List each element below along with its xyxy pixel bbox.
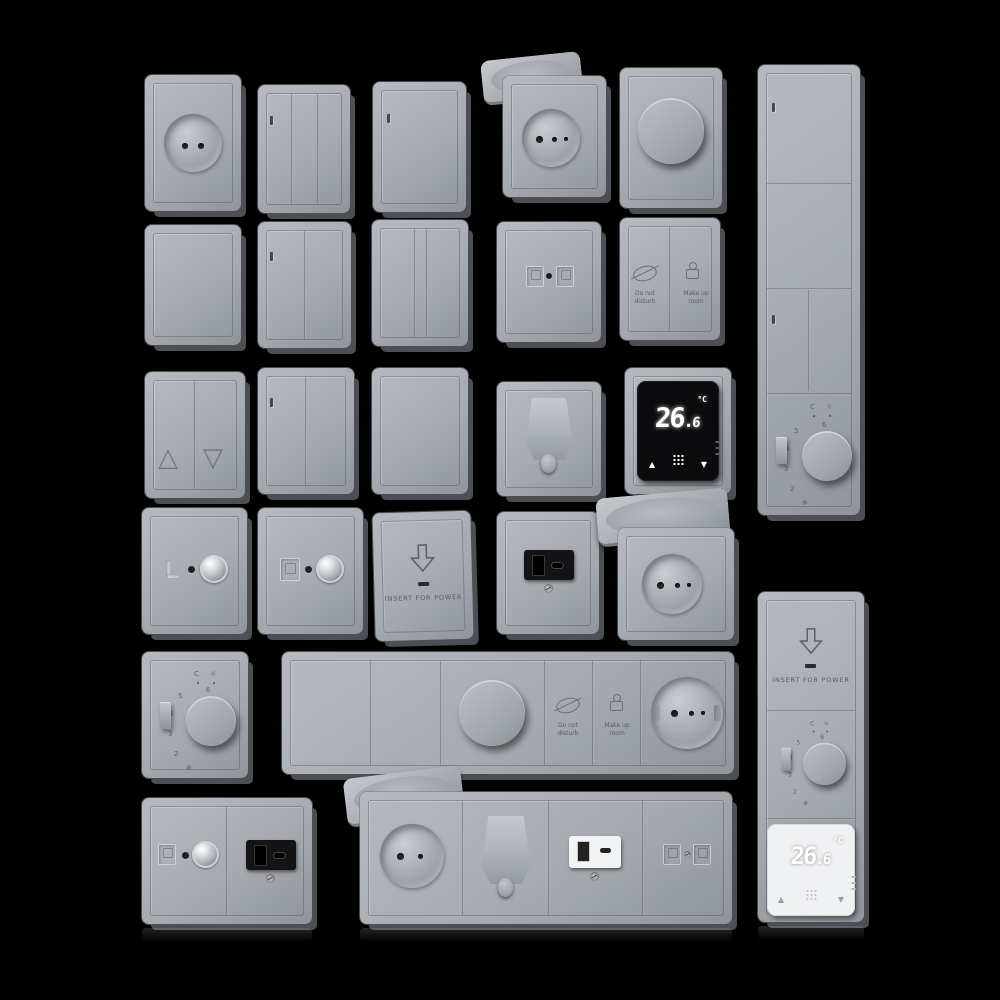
- cool-mark: C: [810, 403, 815, 411]
- module-seam: [548, 801, 550, 915]
- socket-recess: [380, 824, 444, 888]
- rocker-seam: [317, 94, 319, 204]
- socket-recess: [522, 109, 580, 167]
- dial-number: 6: [820, 734, 824, 741]
- rocker-seam: [291, 94, 293, 204]
- switch-2-gang: [258, 368, 354, 494]
- rocker-seam: [414, 229, 416, 337]
- sun-mark: ☼: [210, 670, 216, 678]
- dial-number: 5: [178, 692, 182, 700]
- blinds-up-icon: △: [158, 445, 178, 471]
- dial-number: 3: [168, 730, 172, 738]
- socket-recess: [642, 554, 702, 614]
- cool-mark: C: [810, 721, 814, 728]
- combo-coax-usb-plate: [142, 798, 312, 924]
- pin-hole: [552, 137, 557, 142]
- rotary-thermostat-module: C ☼ 6 5 4 3 2 ❄: [758, 395, 864, 517]
- network-jack-icon: [556, 266, 574, 287]
- menu-grid-icon: [806, 889, 817, 900]
- screw: [684, 851, 691, 858]
- earth-clip: [714, 705, 721, 721]
- network-jack-icon: [693, 844, 711, 865]
- l-mark: [166, 574, 179, 578]
- dnd-label: Do not disturb: [627, 290, 663, 305]
- pin-hole: [671, 710, 678, 717]
- menu-grid-icon: [673, 454, 684, 465]
- plate-frame: [505, 230, 593, 334]
- network-jack-icon: [526, 266, 544, 287]
- key-card-holder: INSERT FOR POWER: [372, 511, 473, 642]
- dial-number: 6: [206, 686, 210, 694]
- side-button: [715, 441, 720, 443]
- led-dot: [213, 682, 215, 684]
- dial-number: 6: [822, 421, 826, 429]
- tv-coax-socket: [142, 508, 247, 634]
- usb-a-port: [577, 841, 590, 862]
- pin-hole: [687, 583, 691, 587]
- digital-thermostat-black: 26.6 °C ▲ ▼: [625, 368, 731, 494]
- module-seam: [462, 801, 464, 915]
- thermostat-knob: [803, 743, 846, 786]
- pin-hole: [689, 711, 694, 716]
- coax-connector: [316, 555, 344, 583]
- screw: [266, 874, 275, 883]
- plate-frame: [380, 228, 460, 338]
- dial-number: 5: [797, 739, 801, 746]
- plate-frame: [153, 233, 233, 337]
- indicator-slot: [270, 398, 273, 407]
- plate-frame: [380, 376, 460, 486]
- usb-c-port: [600, 848, 611, 853]
- thermostat-knob: [186, 696, 236, 746]
- dial-number: 2: [174, 750, 178, 758]
- module-seam: [640, 661, 642, 765]
- frost-mark: ❄: [186, 764, 192, 772]
- side-button: [715, 447, 720, 449]
- thermostat-display-white: 26.6 °C ▲ ▼: [767, 824, 855, 916]
- render-scene: C ☼ 6 5 4 3 2 ❄: [0, 0, 1000, 1000]
- rocker-seam: [808, 290, 810, 391]
- usb-a-port: [532, 555, 545, 576]
- hotel-service-switch: Do not disturb Make up room: [620, 218, 720, 340]
- network-jack-icon: [280, 558, 300, 581]
- wall-socket-round: [145, 75, 241, 211]
- dnd-label: Do not disturb: [550, 722, 586, 737]
- usb-c-port: [551, 562, 564, 569]
- switch-3-gang: [258, 85, 350, 213]
- reflection: [758, 926, 864, 940]
- pin-hole: [536, 136, 543, 143]
- make-up-room-icon: [609, 694, 623, 710]
- module-seam: [544, 661, 546, 765]
- mur-label: Make up room: [600, 722, 634, 737]
- temp-up-icon: ▲: [649, 460, 655, 469]
- fixing-hole: [546, 273, 552, 279]
- socket-recess: [651, 677, 723, 749]
- reflection: [142, 928, 312, 942]
- sun-mark: ☼: [826, 403, 832, 411]
- dial-number: 5: [794, 427, 798, 435]
- module-seam: [370, 661, 372, 765]
- rotary-thermostat: C ☼ 6 5 4 3 2 ❄: [142, 652, 248, 778]
- module-seam: [767, 183, 851, 185]
- thermostat-switch-lever: [160, 702, 171, 729]
- dial-number: 2: [793, 789, 797, 796]
- arrow-down-icon: [406, 542, 439, 575]
- temperature-readout: 26.6: [636, 403, 720, 434]
- indicator-slot: [772, 315, 775, 324]
- thermostat-knob: [802, 431, 852, 481]
- temperature-readout: 26.6: [766, 842, 856, 870]
- data-socket-double: [497, 222, 601, 342]
- vertical-hotel-panel: INSERT FOR POWER C ☼ 6 5 4 3 2 ❄ 26.6 °C…: [758, 592, 864, 922]
- dimmer-knob: [638, 98, 704, 164]
- cool-mark: C: [194, 670, 199, 678]
- cable-cover-wedge: [524, 398, 574, 460]
- thermostat-switch-lever: [776, 437, 787, 464]
- led-dot: [813, 415, 815, 417]
- switch-2-gang: [372, 220, 468, 346]
- card-holder-label: INSERT FOR POWER: [758, 676, 864, 684]
- rotary-thermostat-module: C ☼ 6 5 4 3 2 ❄: [142, 656, 248, 778]
- screw: [544, 584, 553, 593]
- side-button: [851, 876, 856, 878]
- led-dot: [813, 731, 815, 733]
- button-seam: [592, 661, 594, 765]
- network-jack-icon: [663, 844, 681, 865]
- rotary-dimmer: [620, 68, 722, 208]
- rocker-seam: [304, 231, 306, 339]
- dial-number: 2: [790, 485, 794, 493]
- indicator-slot: [270, 252, 273, 261]
- side-button: [851, 888, 856, 890]
- pin-hole: [657, 582, 664, 589]
- cable-cover-wedge: [480, 816, 532, 884]
- rocker-seam: [305, 377, 307, 485]
- thermostat-switch-lever: [781, 748, 790, 771]
- plate-frame: [381, 519, 466, 633]
- rocker-seam: [194, 381, 196, 489]
- tv-coax-socket: [258, 508, 363, 634]
- button-seam: [669, 227, 671, 331]
- card-slot: [418, 582, 429, 586]
- fixing-hole: [305, 566, 312, 573]
- mur-label: Make up room: [679, 290, 713, 305]
- usb-charger-socket: [497, 512, 599, 634]
- module-seam: [642, 801, 644, 915]
- reflection: [360, 928, 732, 942]
- module-seam: [767, 818, 855, 820]
- wall-socket-flip-cover: [618, 528, 734, 640]
- wall-socket-flip-cover: [503, 76, 606, 197]
- blank-plate: [145, 225, 241, 345]
- make-up-room-icon: [685, 262, 699, 278]
- thermostat-display: 26.6 °C ▲ ▼: [637, 381, 719, 481]
- blinds-down-icon: ▽: [203, 445, 223, 471]
- dial-number: 3: [788, 772, 792, 779]
- pin-hole: [418, 854, 423, 859]
- network-jack-icon: [158, 844, 176, 865]
- coax-connector: [200, 555, 228, 583]
- blank-plate: [372, 368, 468, 494]
- screw: [590, 872, 599, 881]
- led-dot: [197, 682, 199, 684]
- coax-connector: [192, 841, 219, 868]
- pin-hole: [397, 853, 404, 860]
- unit-label: °C: [833, 836, 843, 845]
- earth-clip: [653, 705, 660, 721]
- rotary-thermostat-module: C ☼ 6 5 4 3 2 ❄: [766, 712, 856, 816]
- led-dot: [829, 415, 831, 417]
- indicator-slot: [772, 103, 775, 112]
- cable-outlet: [497, 382, 601, 496]
- cable-grommet: [498, 878, 513, 897]
- side-button: [851, 882, 856, 884]
- usb-module: [524, 550, 574, 580]
- indicator-slot: [387, 114, 390, 123]
- pin-hole: [182, 143, 188, 149]
- socket-recess: [164, 114, 222, 172]
- usb-a-port: [254, 845, 267, 866]
- usb-module: [246, 840, 296, 870]
- pin-hole: [198, 143, 204, 149]
- frost-mark: ❄: [803, 800, 808, 807]
- dial-number: 3: [784, 465, 788, 473]
- arrow-down-icon: [796, 626, 826, 656]
- sun-mark: ☼: [824, 721, 829, 728]
- switch-2-gang: [258, 222, 351, 348]
- unit-label: °C: [697, 395, 707, 404]
- usb-c-port: [273, 852, 286, 859]
- rocker-seam: [426, 229, 428, 337]
- usb-module: [569, 836, 621, 868]
- module-seam: [226, 807, 228, 915]
- dimmer-knob: [459, 680, 525, 746]
- indicator-slot: [270, 116, 273, 125]
- cable-grommet: [541, 454, 556, 473]
- plate-frame: [381, 90, 458, 204]
- side-button: [715, 453, 720, 455]
- plate-frame: [266, 93, 342, 205]
- fixing-hole: [182, 852, 189, 859]
- led-dot: [826, 731, 828, 733]
- temp-down-icon: ▼: [701, 460, 707, 469]
- horizontal-combo-panel: [360, 792, 732, 924]
- frost-mark: ❄: [802, 499, 808, 507]
- pin-hole: [701, 711, 705, 715]
- temp-down-icon: ▼: [838, 895, 844, 904]
- vertical-multi-panel: C ☼ 6 5 4 3 2 ❄: [758, 65, 860, 515]
- pin-hole: [564, 137, 568, 141]
- blinds-switch: △ ▽: [145, 372, 245, 498]
- switch-1-gang: [373, 82, 466, 212]
- horizontal-combo-panel: Do not disturb Make up room: [282, 652, 734, 774]
- card-slot: [805, 664, 816, 668]
- pin-hole: [675, 583, 680, 588]
- fixing-hole: [188, 566, 195, 573]
- temp-up-icon: ▲: [778, 895, 784, 904]
- module-seam: [440, 661, 442, 765]
